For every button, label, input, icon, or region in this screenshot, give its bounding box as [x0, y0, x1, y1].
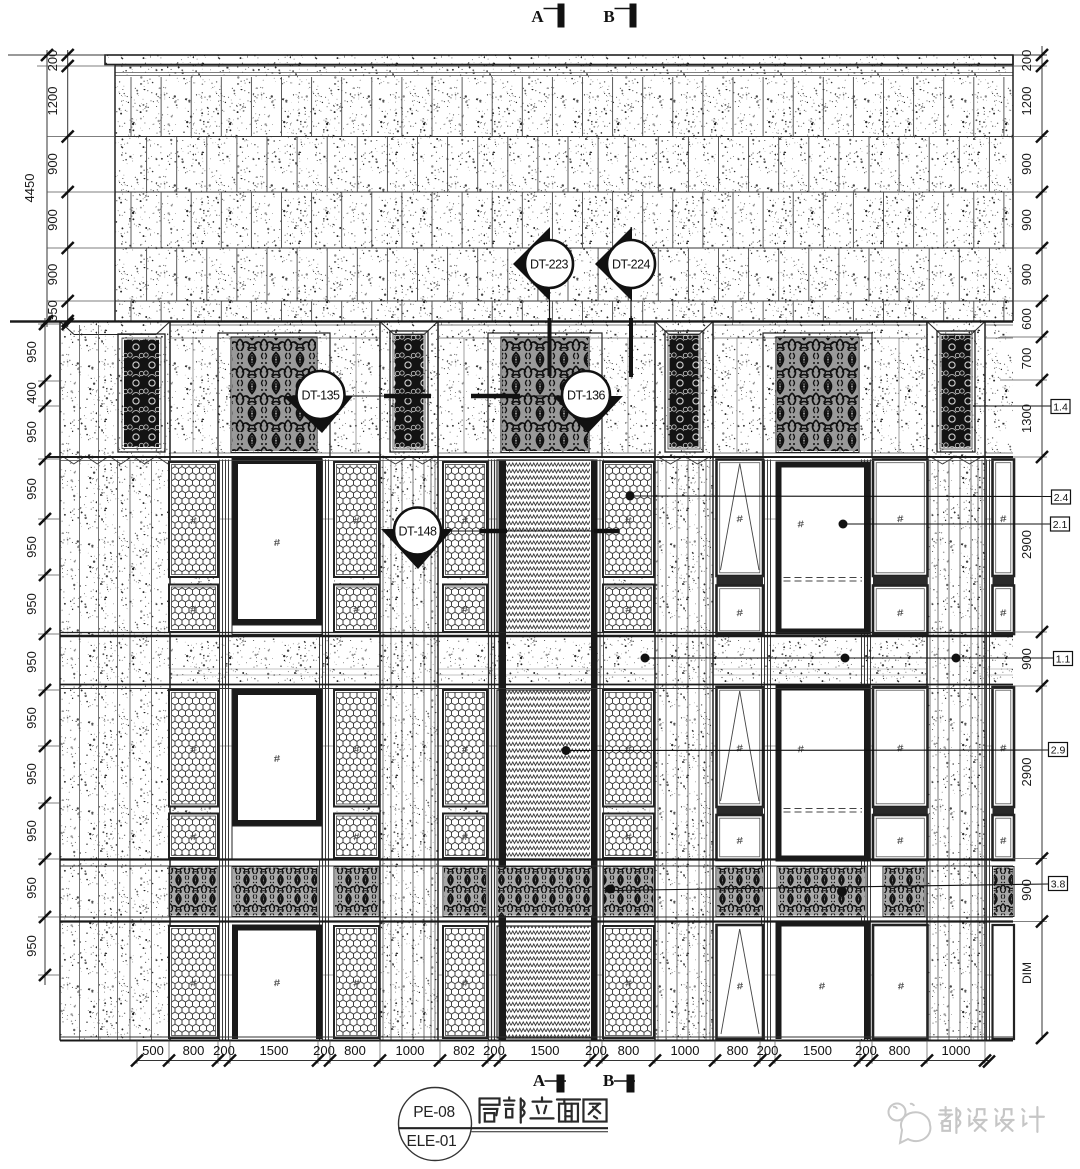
svg-text:200: 200 [45, 50, 60, 72]
svg-text:1.1: 1.1 [1056, 654, 1071, 666]
svg-text:1500: 1500 [803, 1043, 832, 1058]
svg-text:DIM: DIM [1020, 962, 1034, 984]
svg-text:802: 802 [453, 1043, 475, 1058]
svg-text:A: A [531, 7, 544, 26]
svg-text:200: 200 [855, 1043, 877, 1058]
svg-text:800: 800 [889, 1043, 911, 1058]
svg-text:800: 800 [344, 1043, 366, 1058]
svg-text:700: 700 [1019, 348, 1034, 370]
svg-text:500: 500 [142, 1043, 164, 1058]
svg-text:950: 950 [24, 935, 39, 957]
svg-text:900: 900 [45, 153, 60, 175]
svg-text:4450: 4450 [22, 174, 37, 203]
svg-text:1200: 1200 [45, 87, 60, 116]
svg-text:350: 350 [45, 300, 60, 322]
svg-text:400: 400 [24, 382, 39, 404]
svg-text:ELE-01: ELE-01 [407, 1133, 457, 1150]
svg-text:3.8: 3.8 [1051, 879, 1066, 891]
svg-text:950: 950 [24, 651, 39, 673]
svg-text:2.9: 2.9 [1051, 745, 1066, 757]
svg-text:B: B [603, 1071, 614, 1090]
svg-text:200: 200 [483, 1043, 505, 1058]
svg-text:2.1: 2.1 [1053, 519, 1068, 531]
svg-text:B: B [603, 7, 614, 26]
svg-text:950: 950 [24, 593, 39, 615]
svg-text:200: 200 [213, 1043, 235, 1058]
svg-text:1000: 1000 [396, 1043, 425, 1058]
svg-text:950: 950 [24, 478, 39, 500]
svg-text:950: 950 [24, 707, 39, 729]
svg-text:800: 800 [618, 1043, 640, 1058]
svg-text:1300: 1300 [1019, 404, 1034, 433]
svg-text:950: 950 [24, 877, 39, 899]
svg-text:1000: 1000 [942, 1043, 971, 1058]
svg-text:DT-136: DT-136 [567, 389, 606, 403]
svg-text:800: 800 [183, 1043, 205, 1058]
svg-text:2900: 2900 [1019, 530, 1034, 559]
svg-text:900: 900 [45, 264, 60, 286]
svg-text:A: A [533, 1071, 546, 1090]
svg-text:1500: 1500 [531, 1043, 560, 1058]
svg-text:1.4: 1.4 [1053, 402, 1068, 414]
svg-text:1200: 1200 [1019, 87, 1034, 116]
svg-text:900: 900 [1019, 209, 1034, 231]
svg-text:950: 950 [24, 341, 39, 363]
svg-text:2900: 2900 [1019, 758, 1034, 787]
svg-text:950: 950 [24, 536, 39, 558]
svg-text:950: 950 [24, 820, 39, 842]
svg-text:950: 950 [24, 763, 39, 785]
svg-text:900: 900 [1019, 153, 1034, 175]
svg-text:200: 200 [757, 1043, 779, 1058]
svg-text:1000: 1000 [671, 1043, 700, 1058]
svg-text:900: 900 [1019, 879, 1034, 901]
svg-text:900: 900 [45, 209, 60, 231]
svg-text:DT-224: DT-224 [612, 258, 651, 272]
svg-text:950: 950 [24, 421, 39, 443]
svg-text:DT-135: DT-135 [302, 389, 341, 403]
svg-text:DT-148: DT-148 [399, 525, 438, 539]
svg-text:2.4: 2.4 [1054, 492, 1069, 504]
svg-text:800: 800 [727, 1043, 749, 1058]
svg-text:1500: 1500 [260, 1043, 289, 1058]
svg-text:900: 900 [1019, 264, 1034, 286]
svg-text:DT-223: DT-223 [530, 258, 569, 272]
svg-text:200: 200 [313, 1043, 335, 1058]
svg-text:900: 900 [1019, 648, 1034, 670]
svg-text:PE-08: PE-08 [413, 1104, 455, 1121]
svg-text:200: 200 [1019, 50, 1034, 72]
svg-text:600: 600 [1019, 308, 1034, 330]
svg-text:200: 200 [585, 1043, 607, 1058]
